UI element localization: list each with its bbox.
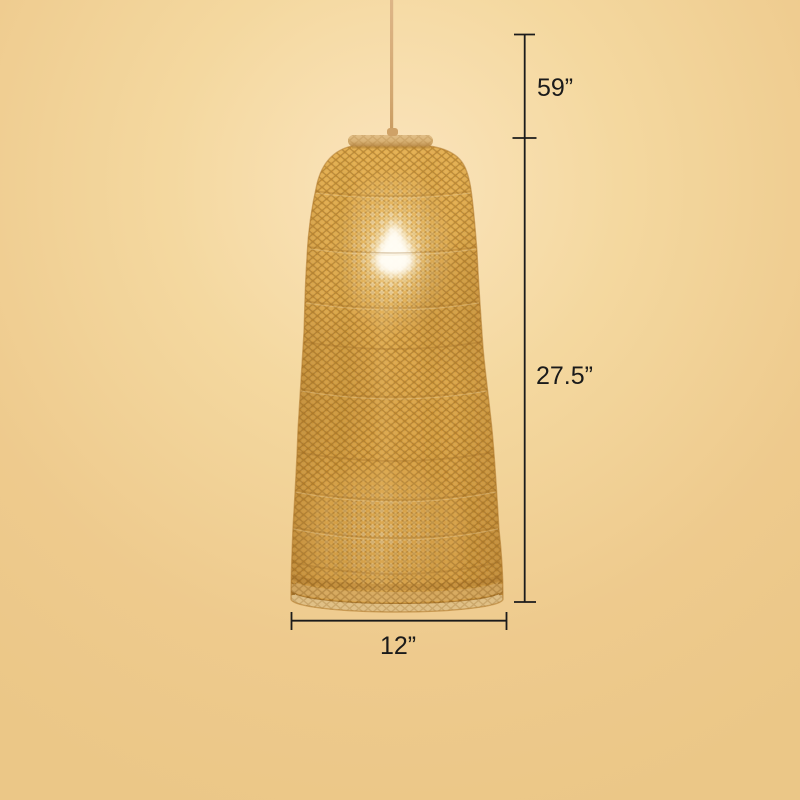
svg-text:27.5”: 27.5”: [536, 362, 593, 390]
svg-text:59”: 59”: [537, 74, 573, 102]
svg-text:12”: 12”: [380, 632, 416, 660]
